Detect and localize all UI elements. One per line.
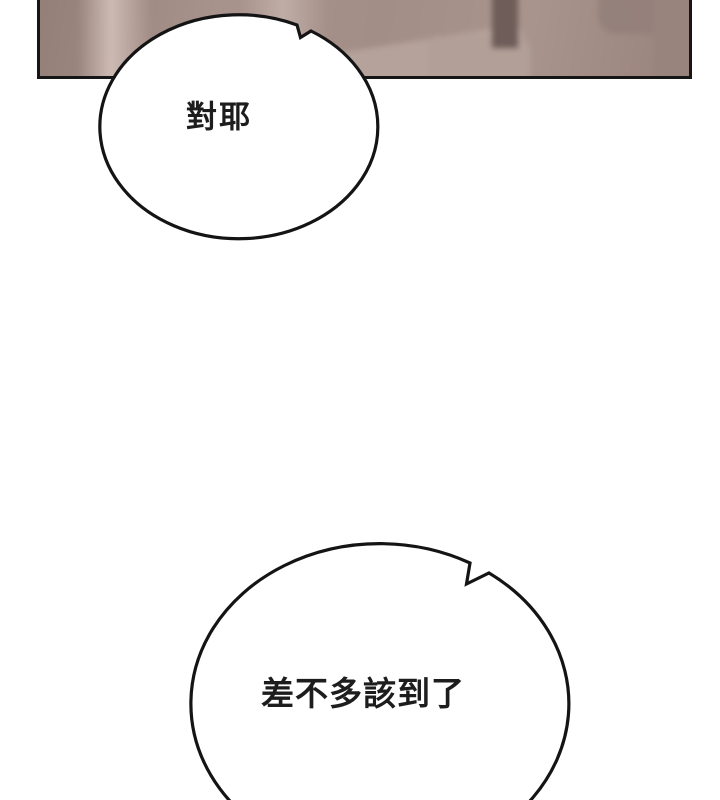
speech-bubble-bottom-text: 差不多該到了 — [261, 667, 465, 715]
comic-page: 對耶 差不多該到了 — [0, 0, 720, 800]
speech-bubble-top-text: 對耶 — [186, 92, 252, 137]
